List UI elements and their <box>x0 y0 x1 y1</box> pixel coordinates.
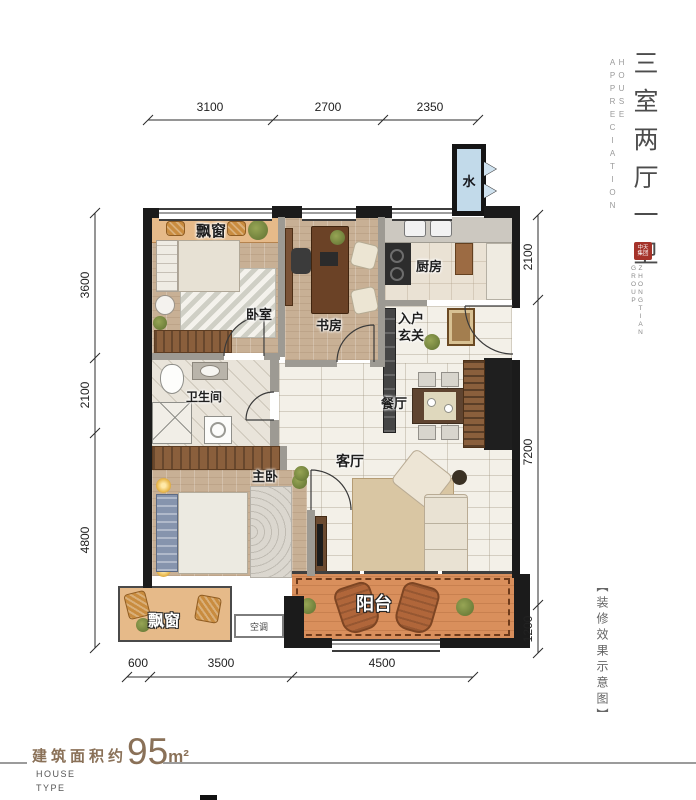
entry-rug <box>447 308 475 346</box>
dim-left-3: 4800 <box>78 527 92 554</box>
label-bathroom: 卫生间 <box>186 388 222 405</box>
dim-left-1: 3600 <box>78 272 92 299</box>
wall-bathroom-east-upper <box>270 360 279 392</box>
label-water: 水 <box>452 144 486 216</box>
page-marker <box>200 795 217 800</box>
dim-top-3: 2350 <box>417 100 444 114</box>
kitchen-sink-2 <box>430 220 452 237</box>
bedroom-bed <box>178 240 240 292</box>
balcony-sliding-door <box>292 571 514 574</box>
footer-line-right <box>163 762 696 764</box>
wall-right-lower <box>512 360 520 578</box>
wall-master-east <box>307 510 315 576</box>
brand-seal-text: 中天集团 <box>637 245 650 258</box>
dining-plate-2 <box>444 404 453 413</box>
kitchen-cart <box>455 243 473 275</box>
stove-burner-2 <box>390 267 404 281</box>
label-study: 书房 <box>316 315 342 334</box>
footer-type-line1: HOUSE <box>36 769 76 779</box>
bedroom-side-table <box>155 295 175 315</box>
wall-study-south-left <box>285 360 337 367</box>
bedroom-bed-pillows <box>156 240 178 292</box>
dining-chair-3 <box>418 425 436 440</box>
study-chair <box>291 248 311 274</box>
wall-study-south-right <box>370 360 385 367</box>
dim-top-1: 3100 <box>197 100 224 114</box>
bay-top-plant <box>248 220 268 240</box>
tv <box>317 524 323 566</box>
label-bedroom: 卧室 <box>246 304 272 323</box>
kitchen-cabinet <box>486 243 512 300</box>
wall-study-entry <box>378 217 385 363</box>
bay-top-cushion-2 <box>227 221 246 236</box>
dim-bottom-3: 4500 <box>369 656 396 670</box>
dim-right-3: 1200 <box>521 616 535 643</box>
label-dining: 餐厅 <box>381 393 407 412</box>
label-kitchen: 厨房 <box>416 256 442 275</box>
master-bed <box>178 492 248 574</box>
balcony-plant-2 <box>456 598 474 616</box>
footer-area-prefix: 建筑面积约 <box>32 745 127 769</box>
label-bay-bottom: 飘窗 <box>148 607 180 631</box>
footer-area-unit: m² <box>168 747 189 769</box>
stove-burner-1 <box>390 249 404 263</box>
dim-bottom-2: 3500 <box>208 656 235 670</box>
wall-bay-pillar <box>284 596 304 648</box>
floor-lamp <box>452 470 467 485</box>
study-laptop <box>320 252 338 266</box>
wall-right-upper <box>512 206 520 308</box>
wall-bedroom-study <box>278 217 285 357</box>
dim-bottom-1: 600 <box>128 656 148 670</box>
decoration-note: 【装修效果示意图】 <box>594 580 611 740</box>
sideboard-backdrop <box>484 358 512 450</box>
dim-right-2: 7200 <box>521 439 535 466</box>
label-bay-top: 飘窗 <box>196 220 226 241</box>
dining-chair-1 <box>418 372 436 387</box>
washer-drum <box>210 422 226 438</box>
wall-bedroom-south-left <box>152 353 224 360</box>
dim-right-1: 2100 <box>521 244 535 271</box>
living-plant-north <box>424 334 440 350</box>
wall-top-pillar-2 <box>356 206 392 218</box>
study-beanbag-2 <box>350 286 380 316</box>
kitchen-sink-1 <box>404 220 426 237</box>
dim-left-2: 2100 <box>78 382 92 409</box>
dim-top-2: 2700 <box>315 100 342 114</box>
brand-seal: 中天集团 <box>634 242 652 260</box>
master-rug <box>250 486 292 578</box>
footer-type-line2: TYPE <box>36 783 66 793</box>
brand-group-name: ZHONGTIAN GROUP <box>630 265 644 345</box>
wall-wardrobe-stub <box>280 446 287 470</box>
wall-bathroom-east-lower <box>270 420 279 446</box>
dining-chair-2 <box>441 372 459 387</box>
study-plant <box>330 230 345 245</box>
wall-top-pillar-1 <box>272 206 302 218</box>
label-master: 主卧 <box>252 466 278 485</box>
window-kitchen <box>392 208 452 221</box>
toilet <box>160 364 184 394</box>
wall-kitchen-south <box>385 300 427 306</box>
bedroom-wardrobe <box>154 330 232 353</box>
balcony-railing <box>332 639 440 652</box>
sofa <box>424 494 468 576</box>
label-entry-line2: 玄关 <box>398 325 424 344</box>
master-lamp-1 <box>156 478 171 493</box>
dining-plate-1 <box>427 398 436 407</box>
living-plant-west <box>294 466 309 481</box>
bay-top-cushion-1 <box>166 221 185 236</box>
label-living: 客厅 <box>336 451 364 471</box>
label-ac: 空调 <box>234 614 284 638</box>
bathroom-sink <box>200 365 220 377</box>
shower <box>152 402 192 444</box>
window-study <box>302 208 356 221</box>
wall-left <box>143 208 152 588</box>
label-balcony: 阳台 <box>356 590 392 616</box>
wall-bedroom-south-right <box>264 353 280 360</box>
footer-area-value: 95 <box>127 735 168 769</box>
footer-line-left <box>0 762 27 764</box>
wall-top-corner-left <box>143 208 159 218</box>
bedroom-plant <box>153 316 167 330</box>
bay-bottom-cushion-2 <box>194 594 222 624</box>
wall-balcony-bottom-right <box>440 638 520 648</box>
dining-chair-4 <box>441 425 459 440</box>
sidebar-subtitle: HOUSE APPRECIATION <box>608 58 626 288</box>
floorplan-page: 3100 2700 2350 3600 2100 4800 2100 7200 … <box>0 0 696 800</box>
master-bed-pillows <box>156 494 178 572</box>
dining-sideboard <box>463 360 485 448</box>
